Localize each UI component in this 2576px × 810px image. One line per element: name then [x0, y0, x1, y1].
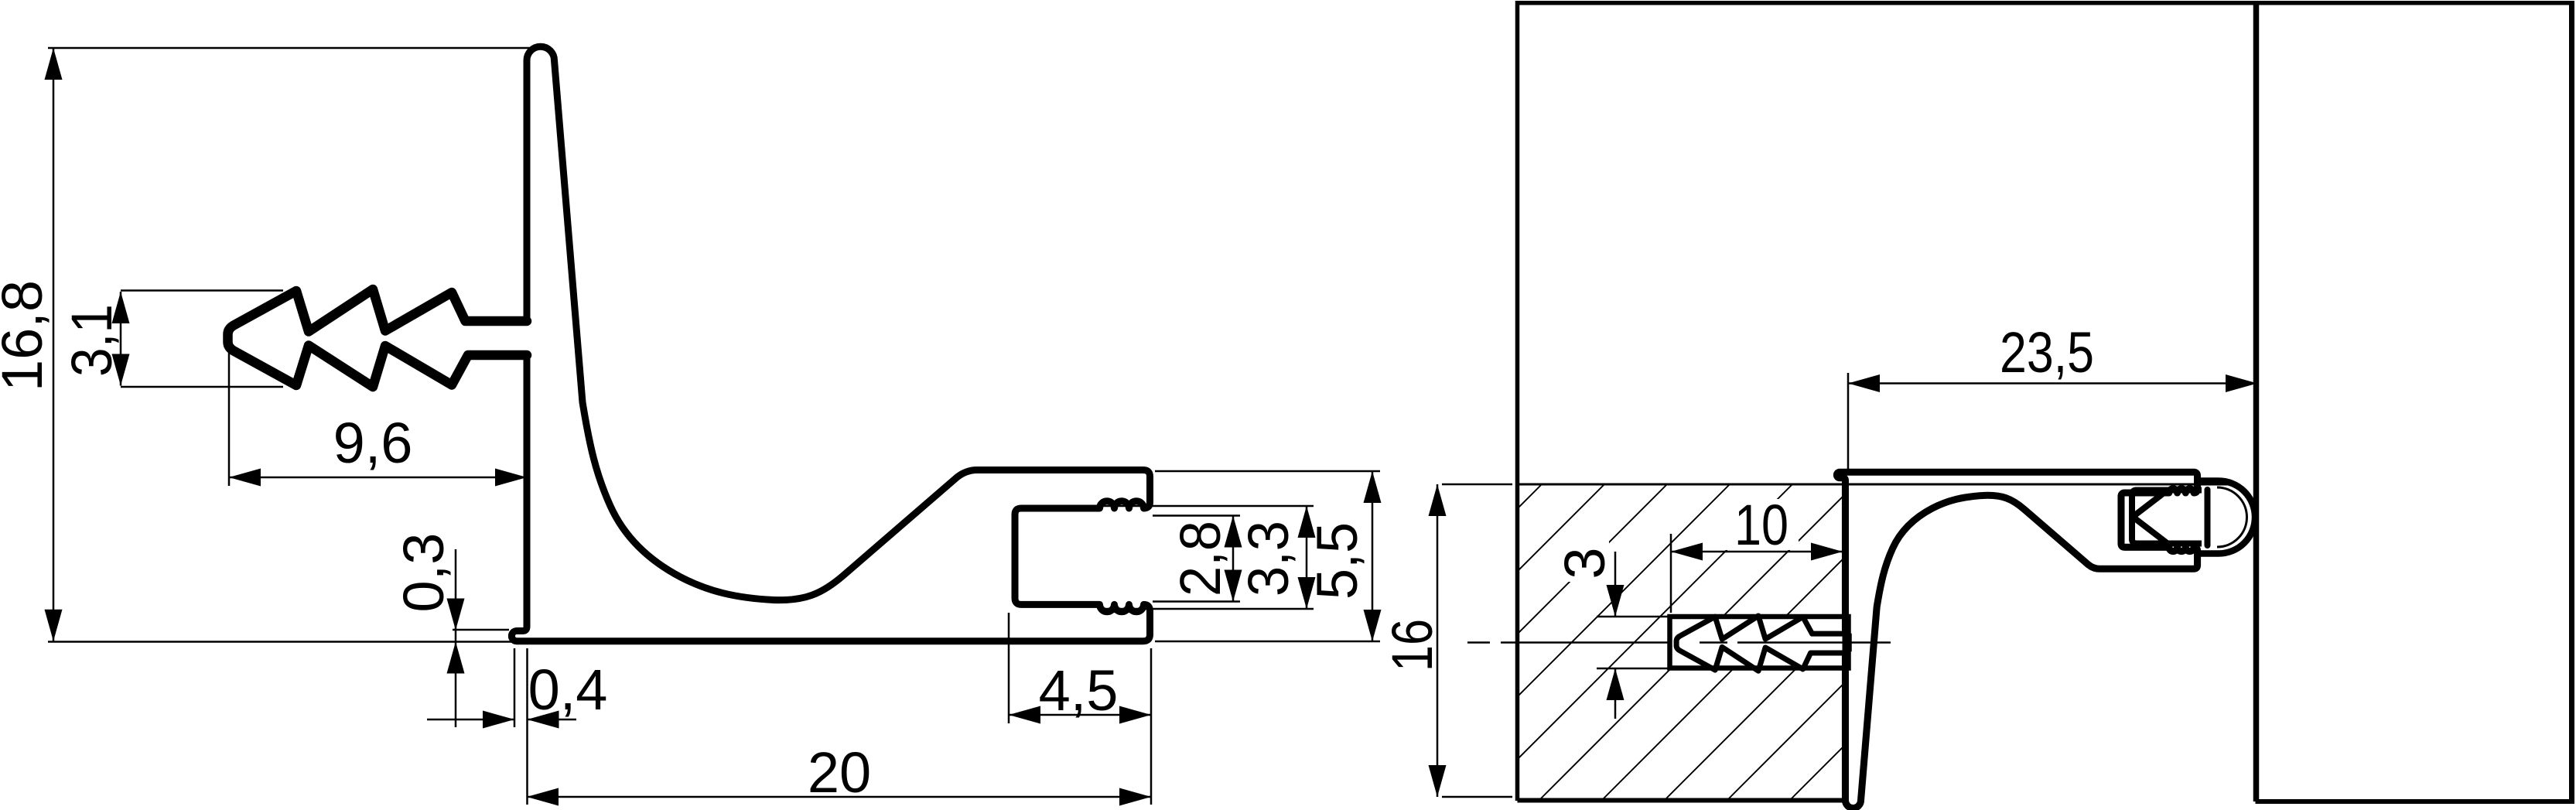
svg-text:3: 3: [1553, 547, 1617, 579]
svg-text:3,3: 3,3: [1236, 521, 1300, 596]
svg-text:16: 16: [1380, 619, 1444, 672]
svg-text:5,5: 5,5: [1305, 522, 1369, 600]
svg-text:4,5: 4,5: [1039, 658, 1119, 723]
svg-text:10: 10: [1734, 493, 1789, 557]
svg-text:2,8: 2,8: [1168, 521, 1232, 596]
svg-text:20: 20: [808, 740, 871, 805]
svg-text:0,4: 0,4: [528, 658, 608, 722]
svg-text:0,3: 0,3: [391, 533, 456, 613]
svg-text:16,8: 16,8: [0, 280, 54, 391]
svg-text:23,5: 23,5: [2000, 320, 2094, 384]
svg-text:3,1: 3,1: [60, 304, 124, 377]
svg-text:9,6: 9,6: [333, 411, 413, 475]
